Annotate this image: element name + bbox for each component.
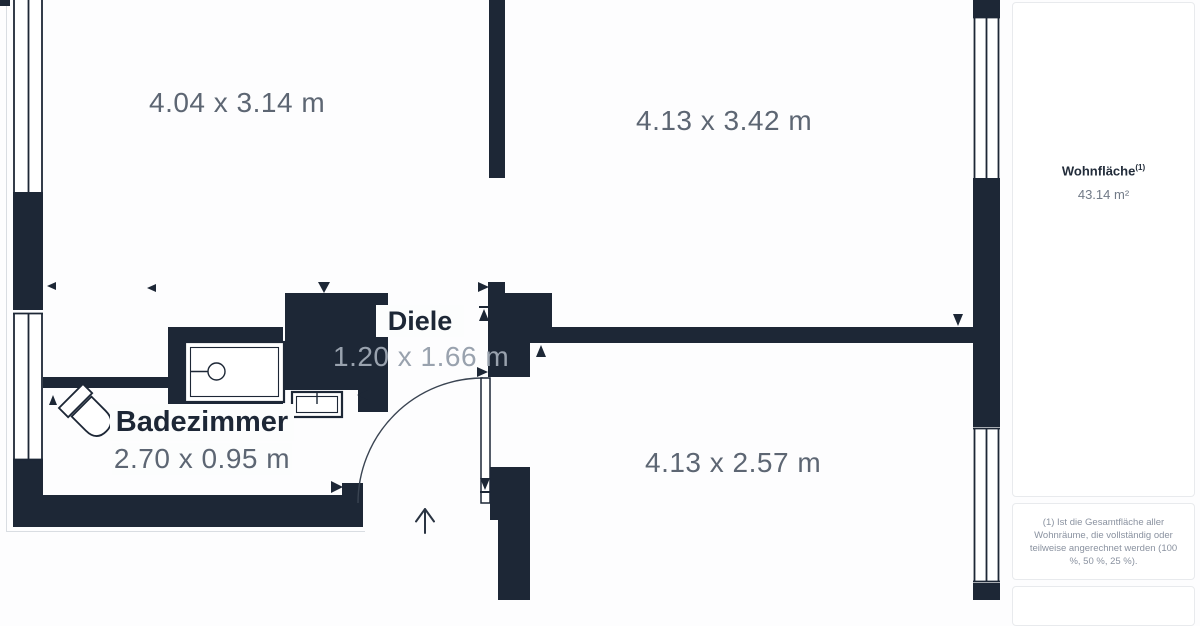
hallway-label: Diele	[376, 305, 464, 337]
wall-segment	[498, 520, 530, 600]
wall-segment	[488, 293, 552, 327]
bathtub-icon	[185, 342, 284, 402]
hallway-dimensions: 1.20 x 1.66 m	[333, 341, 509, 373]
wall-segment	[488, 282, 505, 293]
living-area-label: Wohnfläche	[1062, 163, 1135, 178]
window-icon	[13, 313, 43, 460]
marker-up-icon	[536, 345, 546, 357]
wall-segment	[0, 0, 10, 6]
footnote-text: (1) Ist die Gesamtfläche aller Wohnräume…	[1013, 512, 1194, 572]
living-area-title: Wohnfläche(1)	[1013, 163, 1194, 178]
wall-segment	[973, 583, 1000, 600]
footnote-card: (1) Ist die Gesamtfläche aller Wohnräume…	[1012, 503, 1195, 580]
window-icon	[13, 0, 43, 192]
wall-segment	[490, 467, 530, 520]
room-top-right-dimensions: 4.13 x 3.42 m	[636, 105, 812, 137]
marker-down-icon	[318, 282, 330, 293]
footnote-marker: (1)	[1135, 163, 1145, 172]
living-area-value: 43.14 m²	[1013, 187, 1194, 202]
marker-left-icon	[47, 282, 56, 290]
marker-right-icon	[478, 282, 489, 292]
window-icon	[973, 428, 1000, 582]
window-icon	[973, 17, 1000, 178]
floorplan-viewer: 4.04 x 3.14 m 4.13 x 3.42 m 4.13 x 2.57 …	[0, 0, 1200, 600]
room-bottom-right-dimensions: 4.13 x 2.57 m	[645, 447, 821, 479]
sink-icon	[292, 392, 342, 417]
living-area-card: Wohnfläche(1) 43.14 m²	[1012, 2, 1195, 497]
bathroom-label: Badezimmer	[110, 404, 294, 441]
marker-line	[480, 491, 490, 493]
wall-segment	[973, 0, 1000, 17]
marker-down-icon	[953, 314, 963, 326]
wall-segment	[43, 495, 363, 527]
marker-right-icon	[331, 481, 343, 493]
wall-segment	[973, 177, 1000, 427]
outer-wall-line	[6, 0, 7, 532]
wall-segment	[530, 327, 973, 343]
outer-wall-line	[6, 531, 365, 532]
marker-up-icon	[479, 309, 489, 321]
north-arrow-icon	[416, 509, 434, 533]
marker-up-icon	[49, 395, 57, 405]
room-top-left-dimensions: 4.04 x 3.14 m	[149, 87, 325, 119]
marker-left-icon	[147, 284, 156, 292]
wall-segment	[13, 460, 43, 527]
bathroom-dimensions: 2.70 x 0.95 m	[112, 443, 292, 475]
wall-segment	[13, 192, 43, 310]
wall-segment	[489, 0, 505, 178]
extra-card	[1012, 586, 1195, 626]
marker-line	[479, 306, 489, 308]
